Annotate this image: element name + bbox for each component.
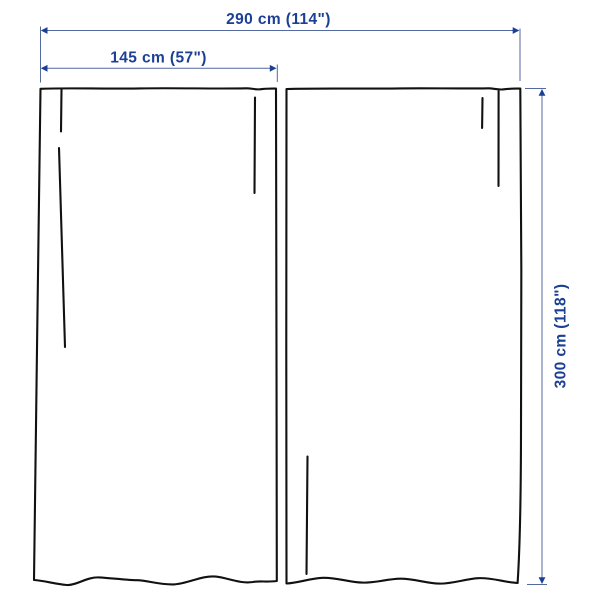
svg-text:290 cm (114"): 290 cm (114")	[226, 11, 331, 28]
svg-text:145 cm (57"): 145 cm (57")	[110, 50, 207, 67]
svg-text:300 cm (118"): 300 cm (118")	[553, 284, 570, 389]
